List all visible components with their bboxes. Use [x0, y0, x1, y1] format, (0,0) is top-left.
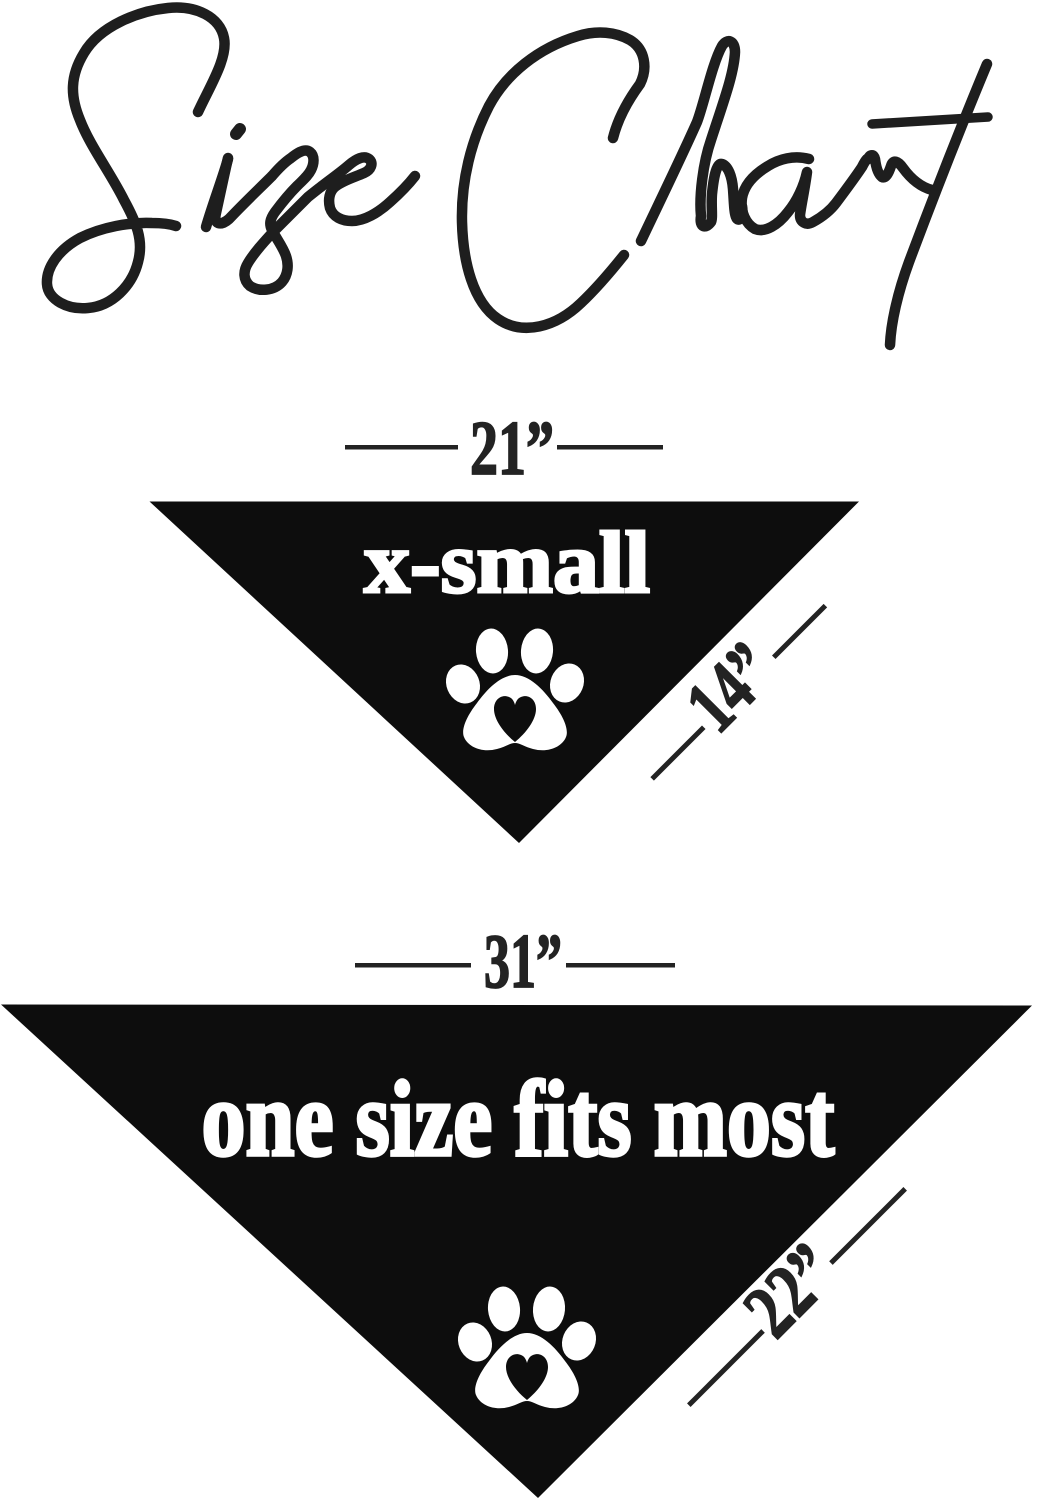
svg-text:x-small: x-small: [364, 515, 650, 612]
svg-text:31”: 31”: [484, 918, 562, 1004]
svg-text:one size fits most: one size fits most: [202, 1060, 835, 1179]
svg-text:21”: 21”: [470, 405, 554, 491]
